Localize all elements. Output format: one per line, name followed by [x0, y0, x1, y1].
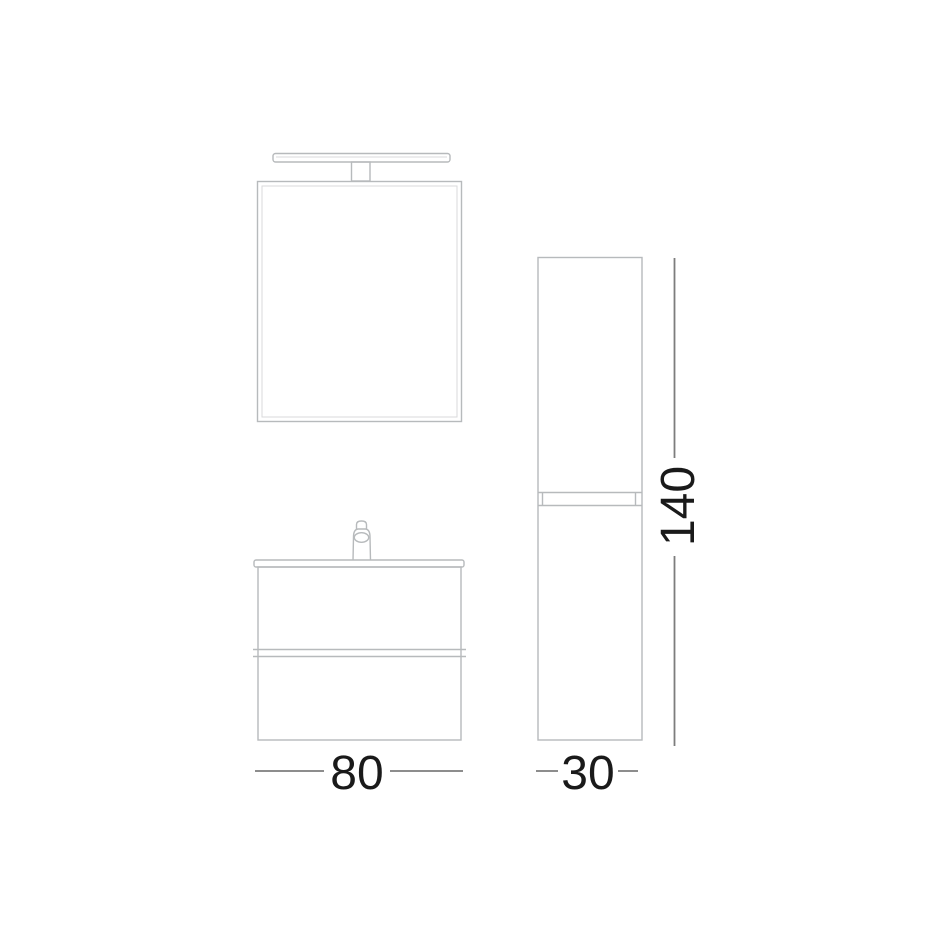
bathroom-furniture-technical-drawing: 80 30 140: [0, 0, 950, 950]
tall-column-cabinet: [538, 258, 642, 741]
column-body: [538, 258, 642, 741]
mirror-outer-frame: [258, 182, 462, 422]
vanity-width-label: 80: [330, 750, 383, 798]
mirror-cabinet: [258, 182, 462, 422]
line-drawing: [0, 0, 950, 950]
column-height-label: 140: [655, 466, 703, 546]
faucet-body: [353, 529, 371, 561]
faucet-icon: [353, 521, 371, 561]
vanity-cabinet: [253, 567, 466, 740]
vanity-body: [258, 567, 461, 740]
light-fixture: [273, 154, 450, 182]
washbasin-top: [254, 560, 464, 567]
column-width-label: 30: [561, 750, 614, 798]
faucet-lever: [357, 521, 367, 529]
light-bar: [273, 154, 450, 163]
light-stem: [352, 162, 371, 181]
mirror-inner-frame: [262, 186, 457, 417]
faucet-aerator: [354, 533, 368, 543]
